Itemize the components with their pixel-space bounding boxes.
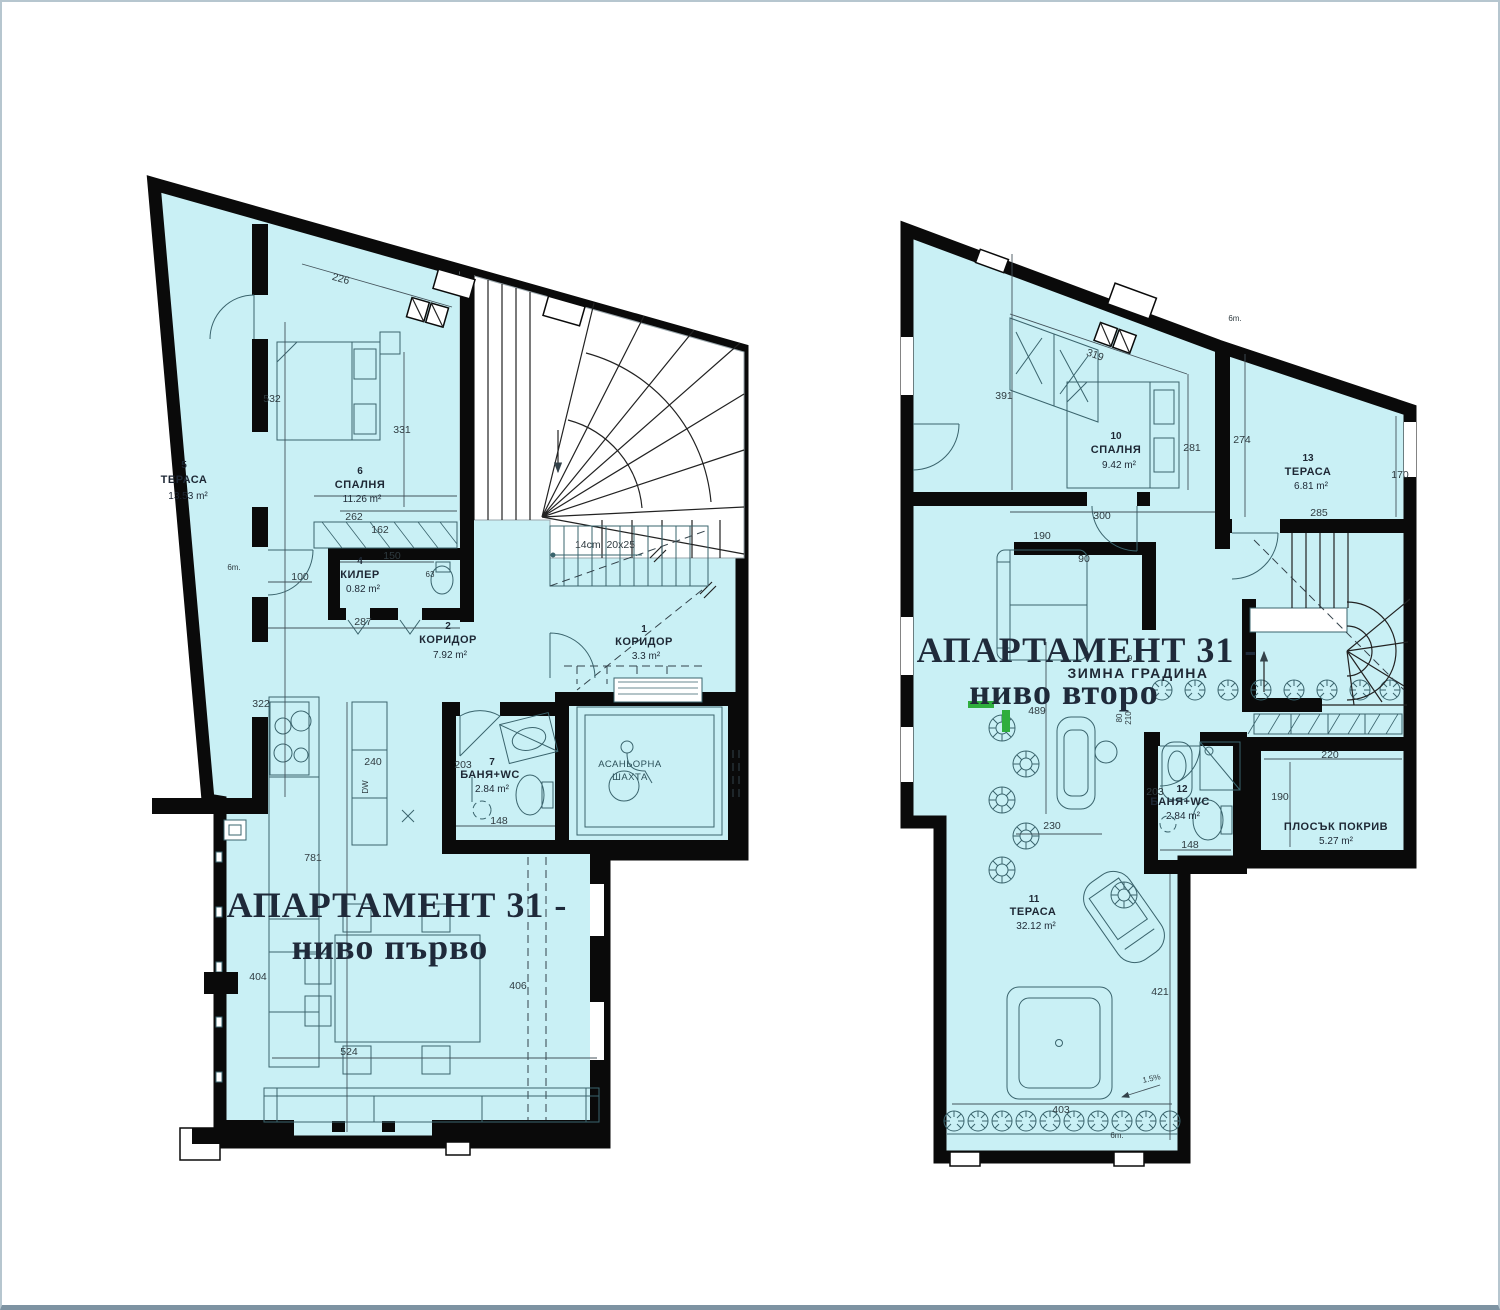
room2-area: 7.92 m²: [433, 650, 468, 661]
room5-num: 5: [181, 460, 187, 471]
room13-num: 13: [1302, 453, 1314, 464]
dim-240: 240: [364, 756, 382, 768]
shaft-label-2: ШАХТА: [612, 772, 648, 783]
room10-name: СПАЛНЯ: [1091, 444, 1142, 456]
room2-num: 2: [445, 621, 451, 632]
room4-num: 4: [357, 556, 363, 567]
note-6m-left: 6m.: [227, 563, 240, 572]
dim-524: 524: [340, 1046, 358, 1058]
room9-name: ЗИМНА ГРАДИНА: [1067, 665, 1208, 681]
dim-190a: 190: [1033, 530, 1051, 542]
plan-level-2: 319 6m. 391 10 СПАЛНЯ 9.42 m² 281 274 13…: [901, 230, 1416, 1166]
dim-150: 150: [383, 550, 401, 562]
floor-plan-sheet: 226 5 ТЕРАСА 13.53 m² 532 331 6 СПАЛНЯ 1…: [0, 0, 1500, 1310]
room2-name: КОРИДОР: [419, 634, 477, 646]
dim-532: 532: [263, 393, 281, 405]
dim-404: 404: [249, 971, 267, 983]
plan1-title-line2: ниво първо: [292, 927, 489, 967]
room11-area: 32.12 m²: [1016, 921, 1056, 932]
room4-area: 0.82 m²: [346, 584, 381, 595]
room13-name: ТЕРАСА: [1285, 466, 1332, 478]
dim-403: 403: [1052, 1104, 1070, 1116]
dim-190b: 190: [1271, 791, 1289, 803]
dim-421: 421: [1151, 986, 1169, 998]
dim-162: 162: [371, 524, 389, 536]
roof-name: ПЛОСЪК ПОКРИВ: [1284, 821, 1388, 833]
dim-489: 489: [1028, 705, 1046, 717]
door-size-210: 210: [1124, 711, 1133, 725]
room1-name: КОРИДОР: [615, 636, 673, 648]
dim-170: 170: [1391, 469, 1409, 481]
room1-num: 1: [641, 624, 647, 635]
room7-area: 2.84 m²: [475, 784, 510, 795]
green-marker-2: [1002, 710, 1010, 732]
note-dw: DW: [361, 780, 370, 794]
room7-name: БАНЯ+WC: [460, 769, 520, 781]
room9-num: 9: [1128, 654, 1133, 663]
dim-391: 391: [995, 390, 1013, 402]
dim-300: 300: [1093, 510, 1111, 522]
room10-area: 9.42 m²: [1102, 460, 1137, 471]
room12-area: 2.84 m²: [1166, 811, 1201, 822]
room6-area: 11.26 m²: [343, 494, 382, 505]
room12-name: БАНЯ+WC: [1150, 796, 1210, 808]
plan-level-1: 226 5 ТЕРАСА 13.53 m² 532 331 6 СПАЛНЯ 1…: [152, 184, 744, 1160]
dim-148-p2: 148: [1181, 839, 1199, 851]
room6-name: СПАЛНЯ: [335, 479, 386, 491]
dim-274: 274: [1233, 434, 1251, 446]
dim-262: 262: [345, 511, 363, 523]
room11-name: ТЕРАСА: [1010, 906, 1057, 918]
dim-281: 281: [1183, 442, 1201, 454]
room4-name: КИЛЕР: [340, 569, 380, 581]
room12-num: 12: [1176, 784, 1188, 795]
dim-63: 63: [426, 570, 435, 579]
shaft-label-1: АСАНЬОРНА: [598, 759, 662, 770]
room7-num: 7: [489, 757, 495, 768]
dim-220: 220: [1321, 749, 1339, 761]
plan2-title-line1: АПАРТАМЕНТ 31 -: [917, 630, 1258, 670]
note-6m-bottom: 6m.: [1110, 1131, 1123, 1140]
dim-322: 322: [252, 698, 270, 710]
dim-331: 331: [393, 424, 411, 436]
room5-name: ТЕРАСА: [161, 474, 208, 486]
dim-148-p1: 148: [490, 815, 508, 827]
note-stair: 14cm. 20x25: [575, 539, 635, 551]
room10-num: 10: [1110, 431, 1122, 442]
floor-plan-drawing: 226 5 ТЕРАСА 13.53 m² 532 331 6 СПАЛНЯ 1…: [2, 2, 1500, 1310]
room11-num: 11: [1029, 894, 1040, 905]
plan1-title-line1: АПАРТАМЕНТ 31 -: [227, 885, 568, 925]
room5-area: 13.53 m²: [168, 491, 208, 502]
dim-781: 781: [304, 852, 322, 864]
room6-num: 6: [357, 466, 363, 477]
room1-area: 3.3 m²: [632, 651, 661, 662]
room13-area: 6.81 m²: [1294, 481, 1329, 492]
dim-287: 287: [354, 616, 372, 628]
door-size-80: 80: [1115, 713, 1124, 722]
note-6m-top: 6m.: [1228, 314, 1241, 323]
dim-406: 406: [509, 980, 527, 992]
dim-100: 100: [291, 571, 309, 583]
dim-285: 285: [1310, 507, 1328, 519]
roof-area: 5.27 m²: [1319, 836, 1354, 847]
dim-230: 230: [1043, 820, 1061, 832]
dim-90: 90: [1078, 553, 1090, 565]
